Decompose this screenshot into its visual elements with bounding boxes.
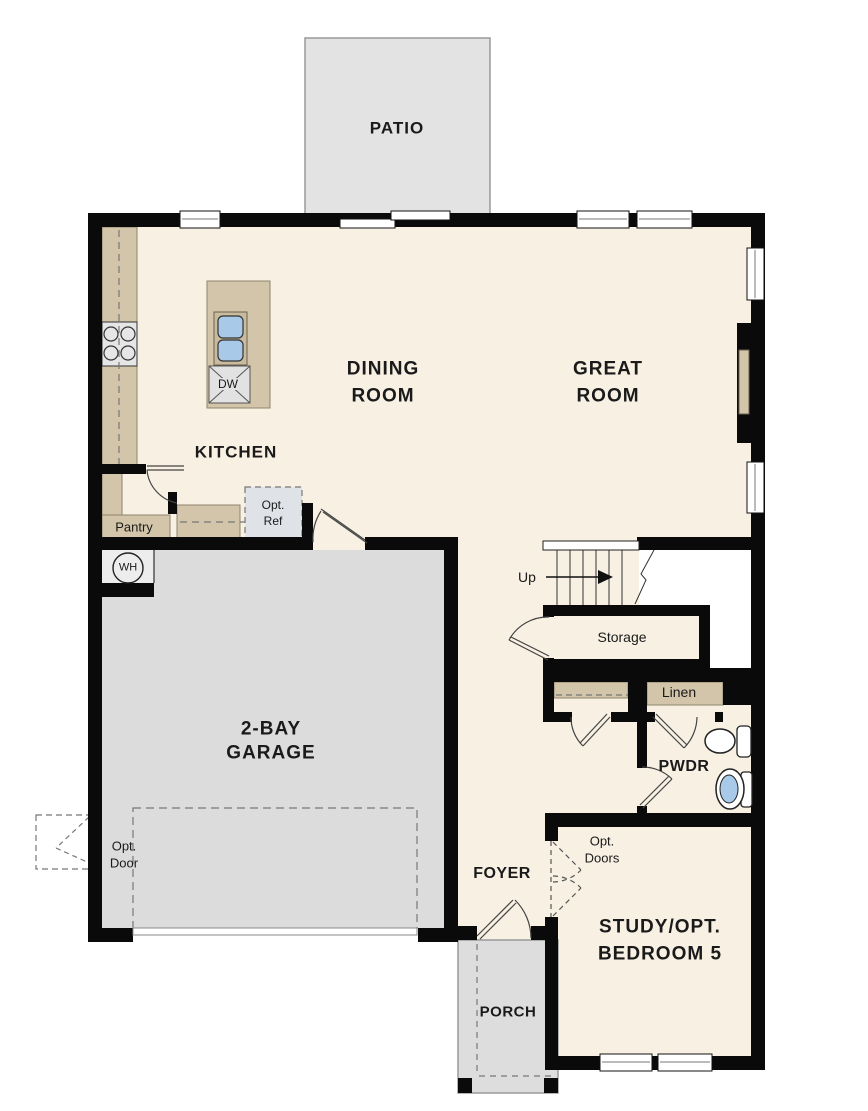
main-floor-upper — [96, 221, 757, 543]
opt-door-label: Opt. — [112, 840, 137, 853]
wall-study-left-lower — [545, 917, 558, 1070]
sink-icon — [705, 729, 735, 753]
fireplace-niche — [739, 350, 749, 414]
water-heater-label: WH — [119, 563, 137, 574]
garage-label: 2-BAY — [241, 720, 301, 739]
wall-pwdr-left-lower — [637, 806, 647, 827]
wall-storage-top — [543, 605, 710, 616]
wall-exterior-left — [88, 213, 102, 942]
study-label: BEDROOM 5 — [598, 945, 722, 964]
opt-door-label: Door — [110, 857, 138, 870]
garage-label: GARAGE — [226, 744, 315, 763]
floor-plan: PATIO DINING ROOM GREAT ROOM KITCHEN Pan… — [0, 0, 868, 1111]
burner-icon — [121, 327, 135, 341]
porch-post — [458, 1078, 472, 1093]
opt-ref-box — [245, 487, 302, 538]
toilet-bowl-icon — [720, 775, 738, 803]
burner-icon — [121, 346, 135, 360]
opt-doors-label: Opt. — [590, 835, 615, 848]
sink-basin-icon — [218, 340, 243, 361]
opt-door-swing — [56, 848, 87, 862]
wall-ref-stub — [302, 503, 313, 550]
wall-coat-stub-left — [543, 712, 572, 722]
study-label: STUDY/OPT. — [599, 918, 721, 937]
dishwasher-label: DW — [216, 378, 240, 390]
opt-doors-label: Doors — [585, 852, 620, 865]
kitchen-label: KITCHEN — [195, 444, 278, 461]
kitchen-sink — [214, 312, 247, 365]
wall-exterior-right-lower — [751, 550, 765, 1070]
wall-foyer-bottom-left — [458, 926, 477, 940]
sink-basin-icon — [218, 316, 243, 338]
wall-pwdr-left-upper — [637, 682, 647, 768]
great-room-label: ROOM — [576, 387, 639, 406]
wall-linen-stub-right — [715, 712, 723, 722]
stairs-up-label: Up — [518, 570, 536, 584]
porch-label: PORCH — [480, 1005, 537, 1020]
wall-storage-right — [699, 605, 710, 670]
storage-door-opening — [543, 617, 554, 658]
wall-study-top — [545, 813, 765, 827]
wall-garage-right — [444, 537, 458, 942]
wall-kitchen-garage — [88, 537, 458, 550]
foyer-label: FOYER — [473, 866, 531, 882]
burner-icon — [104, 327, 118, 341]
patio-label: PATIO — [370, 120, 424, 137]
wall-corner-block — [723, 668, 765, 705]
powder-label: PWDR — [659, 759, 710, 775]
stair-landing-band — [543, 541, 639, 550]
opt-ref-label: Opt. — [262, 499, 285, 511]
garage-door — [133, 928, 417, 935]
burner-icon — [104, 346, 118, 360]
garage-entry-opening — [313, 537, 365, 550]
wall-stairwell-top — [637, 537, 765, 550]
wall-garage-bottom-right — [418, 928, 458, 942]
floor-plan-drawing — [0, 0, 868, 1111]
opt-door-swing — [56, 817, 89, 848]
wall-wh-bottom — [96, 583, 154, 597]
opt-ref-label: Ref — [264, 515, 283, 527]
wall-pantry-top — [96, 464, 146, 474]
storage-label: Storage — [597, 630, 646, 644]
wall-coat-stub-right — [611, 712, 628, 722]
wall-garage-bottom-left — [88, 928, 133, 942]
great-room-label: GREAT — [573, 360, 643, 379]
vanity-icon — [737, 726, 751, 757]
wall-study-bottom — [545, 1056, 765, 1070]
dining-room-label: ROOM — [351, 387, 414, 406]
pantry-label: Pantry — [115, 521, 153, 534]
linen-label: Linen — [662, 685, 696, 699]
porch-post — [544, 1078, 558, 1093]
wall-storage-bottom — [543, 659, 710, 670]
dining-room-label: DINING — [347, 360, 420, 379]
